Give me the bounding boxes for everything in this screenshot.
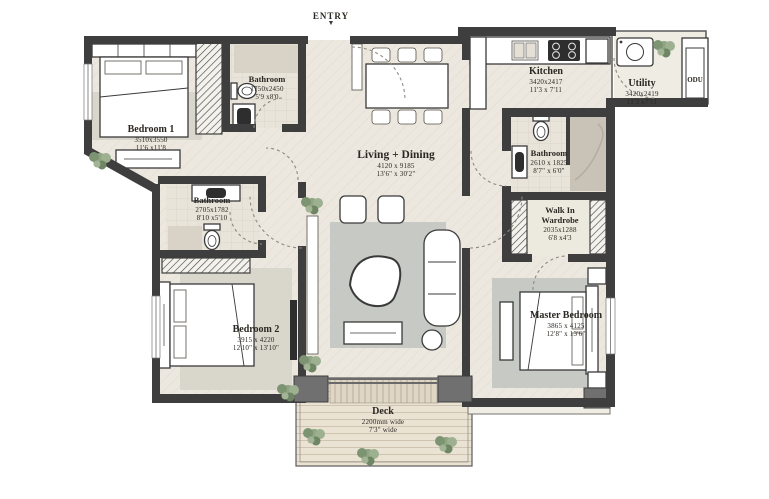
tv	[290, 300, 297, 360]
hob	[548, 40, 580, 61]
coffee-table	[350, 256, 400, 306]
room-label-master-bedroom: Master Bedroom 3865 x 4125 12'8" x 13'6"	[530, 310, 602, 338]
armchair	[340, 196, 366, 223]
room-label-bedroom1: Bedroom 1 3510x3550 11'6 x11'8	[128, 124, 175, 152]
entry-label: ENTRY ▼	[313, 11, 349, 27]
room-label-odu: ODU	[687, 76, 703, 84]
room-label-bedroom2: Bedroom 2 3915 x 4220 12'10" x 13'10"	[233, 324, 280, 352]
room-label-kitchen: Kitchen 3420x2417 11'3 x 7'11	[529, 66, 563, 94]
armchair	[378, 196, 404, 223]
washing-machine	[617, 38, 653, 66]
room-label-bathroom2: Bathroom 2705x1782 8'10 x5'10	[194, 196, 231, 222]
room-label-living: Living + Dining 4120 x 9185 13'6" x 30'2…	[357, 149, 435, 178]
pillow	[105, 61, 141, 74]
wardrobe-hatch	[162, 258, 250, 273]
entry-arrow-icon: ▼	[313, 21, 349, 27]
pillow	[174, 326, 186, 358]
toilet-icon	[231, 83, 237, 99]
dining-chair	[398, 110, 416, 124]
tall-cabinet	[470, 37, 486, 109]
room-label-master-bathroom: Bathroom 2610 x 1825 8'7" x 6'0"	[530, 149, 567, 175]
shower	[234, 45, 298, 73]
dining-chair	[398, 48, 416, 62]
floorplan-page: ENTRY ▼ Bedroom 1 3510x3550 11'6 x11'8 B…	[0, 0, 769, 499]
wardrobe-hatch	[511, 200, 527, 254]
room-label-wardrobe: Walk In Wardrobe 2035x1288 6'8 x4'3	[529, 206, 591, 242]
dining-chair	[424, 110, 442, 124]
wardrobe-hatch	[590, 200, 606, 254]
dining-chair	[372, 110, 390, 124]
pillow	[174, 290, 186, 322]
sofa	[424, 230, 460, 326]
dining-chair	[424, 48, 442, 62]
deck-column	[294, 376, 328, 402]
side-table	[422, 330, 442, 350]
fridge	[586, 39, 608, 63]
nightstand	[588, 372, 606, 388]
nightstand	[588, 268, 606, 284]
dresser	[500, 302, 513, 360]
deck-column	[438, 376, 472, 402]
pillow	[572, 333, 583, 365]
toilet-icon	[204, 224, 220, 230]
wardrobe-hatch	[196, 40, 222, 134]
room-label-deck: Deck 2200mm wide 7'3" wide	[362, 406, 404, 434]
shower	[168, 226, 202, 250]
dining-table	[366, 64, 448, 108]
hall-console	[352, 44, 362, 90]
pillow	[146, 61, 182, 74]
room-label-utility: Utility 3420x2419 11'3 x7'11	[625, 78, 658, 106]
sideboard	[307, 216, 318, 354]
room-label-bathroom1: Bathroom 1750x2450 5'9 x8'0	[249, 75, 286, 101]
